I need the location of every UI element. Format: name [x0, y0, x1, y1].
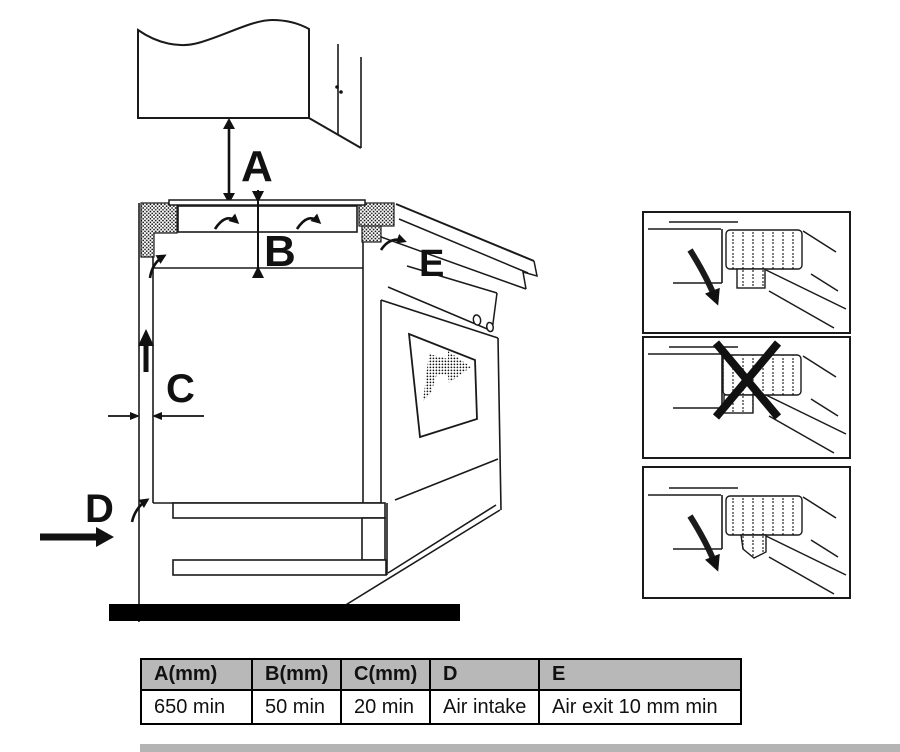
label-b: B — [264, 227, 296, 276]
hinge-dot — [339, 90, 343, 94]
table-value-cell: 20 min — [342, 691, 431, 723]
oven-window — [409, 334, 477, 437]
label-c: C — [166, 367, 195, 411]
floor — [109, 604, 460, 621]
base-cabinet — [139, 203, 382, 622]
table-header-cell: B(mm) — [253, 660, 342, 691]
installation-diagram-canvas: A B C — [0, 0, 900, 752]
label-a: A — [241, 142, 273, 191]
label-d: D — [85, 487, 114, 531]
hob-glass — [169, 200, 365, 205]
hob-lower-block — [737, 269, 765, 288]
oven-side-view — [381, 204, 537, 510]
next-table-edge-strip — [140, 744, 900, 752]
table-header-cell: A(mm) — [142, 660, 253, 691]
airflow-arc-icon — [150, 256, 164, 278]
table-value-cell: 50 min — [253, 691, 342, 723]
worktop-hatch-right-small — [362, 226, 381, 242]
wall-cabinet — [138, 20, 361, 148]
dimensions-table-header-row: A(mm) B(mm) C(mm) D E — [142, 660, 740, 691]
table-value-cell: Air exit 10 mm min — [540, 691, 740, 723]
worktop-hatch-right — [359, 203, 394, 226]
dimensions-table: A(mm) B(mm) C(mm) D E 650 min 50 min 20 … — [140, 658, 742, 725]
table-header-cell: C(mm) — [342, 660, 431, 691]
detail-panel-airflow-blocked — [643, 337, 850, 458]
table-header-cell: E — [540, 660, 740, 691]
hinge-dot — [335, 85, 339, 89]
plinth — [173, 503, 500, 606]
hob-block — [726, 496, 802, 535]
worktop-hatch-left — [141, 203, 177, 257]
dimensions-table-value-row: 650 min 50 min 20 min Air intake Air exi… — [142, 691, 740, 723]
detail-panel-airflow-chamfer-ok — [643, 467, 850, 598]
hob-block — [726, 230, 802, 269]
label-e: E — [419, 243, 444, 285]
table-header-cell: D — [431, 660, 540, 691]
detail-panel-airflow-ok — [643, 212, 850, 333]
table-value-cell: 650 min — [142, 691, 253, 723]
table-value-cell: Air intake — [431, 691, 540, 723]
clearance-arrow-a — [223, 118, 235, 204]
